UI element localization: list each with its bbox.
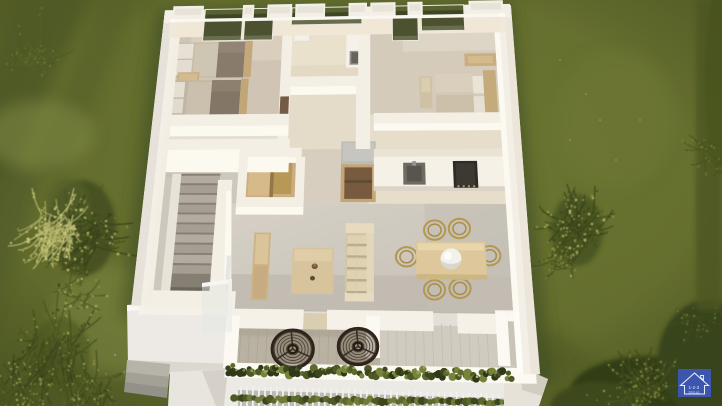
svg-text:1-2-3: 1-2-3 bbox=[689, 385, 700, 390]
svg-text:DNI.es: DNI.es bbox=[689, 391, 700, 395]
